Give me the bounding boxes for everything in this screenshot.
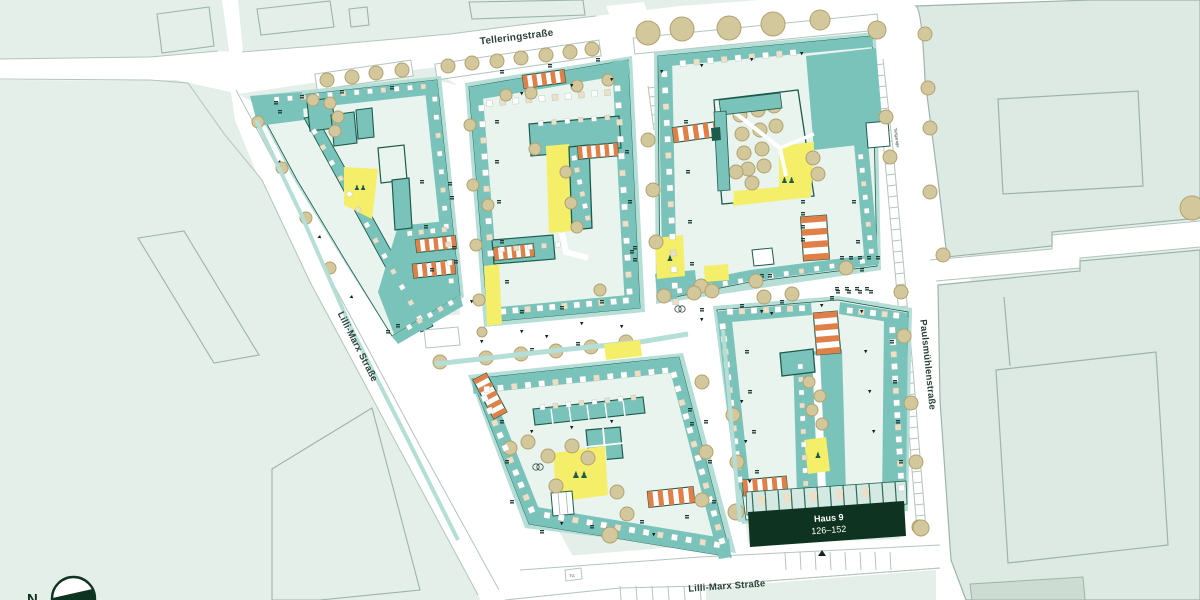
svg-text:♟: ♟	[814, 451, 821, 460]
svg-text:♟♟: ♟♟	[572, 470, 588, 480]
svg-text:♟♟: ♟♟	[354, 184, 367, 192]
svg-text:N: N	[27, 591, 38, 600]
svg-text:TG: TG	[569, 573, 575, 578]
svg-text:Haus 9: Haus 9	[814, 512, 844, 524]
svg-text:♟♟: ♟♟	[781, 176, 795, 185]
